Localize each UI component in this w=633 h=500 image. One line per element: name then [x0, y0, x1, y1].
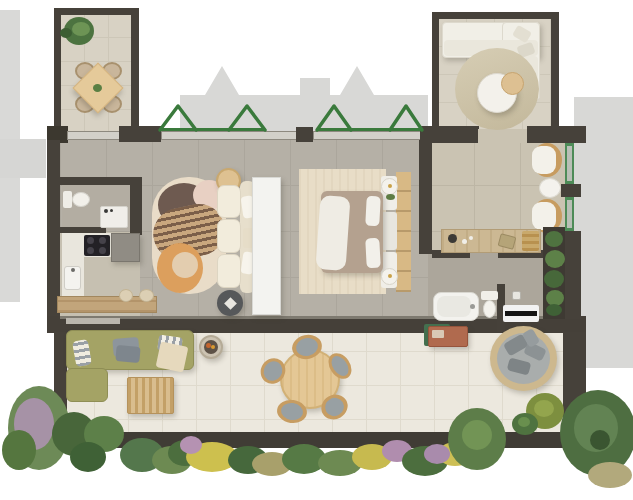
tree-mid-right-highlight	[462, 420, 492, 450]
floor-plan	[0, 0, 633, 500]
grasses-bottom-right	[588, 462, 632, 488]
bush-left-dark	[2, 430, 36, 470]
tree-big-right-shadow	[590, 430, 610, 450]
bush-left-under	[70, 442, 106, 472]
strip-flowers-purple-2	[424, 444, 450, 464]
vegetation	[0, 0, 633, 500]
strip-flowers-purple-1	[180, 436, 202, 454]
